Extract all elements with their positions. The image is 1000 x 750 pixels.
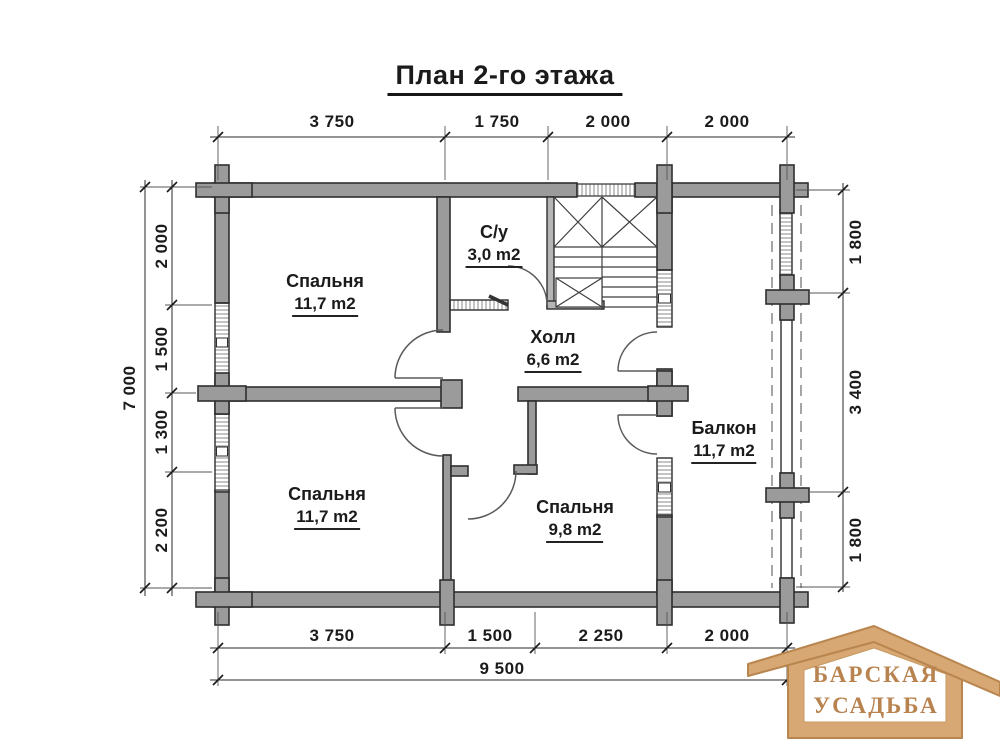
- dim-bottom-4: 2 000: [704, 626, 749, 646]
- room-label-bedroom-bottom-left: Спальня 11,7 m2: [288, 483, 366, 530]
- dim-left-1: 2 000: [152, 223, 172, 268]
- room-label-hall: Холл 6,6 m2: [525, 326, 582, 373]
- dim-bottom-3: 2 250: [578, 626, 623, 646]
- page-title: План 2-го этажа: [387, 60, 622, 96]
- dim-top-1: 3 750: [309, 112, 354, 132]
- stair-top-window: [577, 184, 635, 196]
- room-label-bedroom-top: Спальня 11,7 m2: [286, 270, 364, 317]
- room-label-bathroom: С/у 3,0 m2: [466, 221, 523, 268]
- staircase: [547, 197, 657, 310]
- room-area: 11,7 m2: [691, 440, 756, 464]
- dim-bottom-1: 3 750: [309, 626, 354, 646]
- dim-right-1: 1 800: [846, 219, 866, 264]
- logo-text-line1: БАРСКАЯ: [813, 662, 939, 688]
- room-label-balcony: Балкон 11,7 m2: [691, 417, 756, 464]
- room-name: С/у: [466, 221, 523, 244]
- dim-right-3: 1 800: [846, 517, 866, 562]
- room-area: 11,7 m2: [294, 506, 359, 530]
- dim-left-3: 1 300: [152, 409, 172, 454]
- room-area: 11,7 m2: [292, 293, 357, 317]
- dim-right-2: 3 400: [846, 369, 866, 414]
- room-name: Балкон: [691, 417, 756, 440]
- dim-top-2: 1 750: [474, 112, 519, 132]
- dim-bottom-total: 9 500: [479, 659, 524, 679]
- room-name: Спальня: [286, 270, 364, 293]
- floor-plan-page: План 2-го этажа 3 750 1 750 2 000 2 000 …: [0, 0, 1000, 750]
- room-name: Спальня: [536, 496, 614, 519]
- room-area: 9,8 m2: [547, 519, 604, 543]
- room-name: Холл: [525, 326, 582, 349]
- room-label-bedroom-bottom-mid: Спальня 9,8 m2: [536, 496, 614, 543]
- balcony-railing: [780, 210, 792, 578]
- logo-text-line2: УСАДЬБА: [813, 693, 939, 719]
- dim-top-3: 2 000: [585, 112, 630, 132]
- room-area: 6,6 m2: [525, 349, 582, 373]
- room-area: 3,0 m2: [466, 244, 523, 268]
- room-name: Спальня: [288, 483, 366, 506]
- dim-top-4: 2 000: [704, 112, 749, 132]
- dim-left-total: 7 000: [120, 365, 140, 410]
- dim-left-2: 1 500: [152, 326, 172, 371]
- dim-bottom-2: 1 500: [467, 626, 512, 646]
- dim-left-4: 2 200: [152, 507, 172, 552]
